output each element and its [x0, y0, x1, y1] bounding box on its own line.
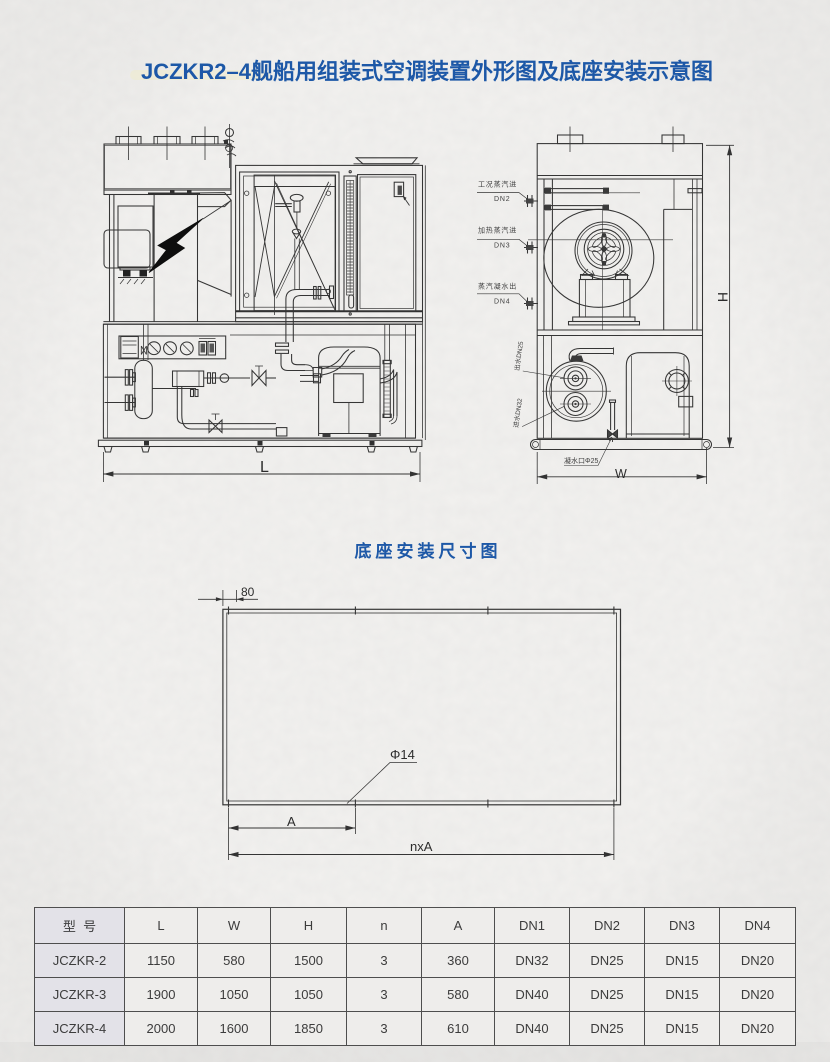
- svg-text:加热蒸汽进: 加热蒸汽进: [478, 226, 517, 235]
- svg-text:H: H: [715, 292, 731, 302]
- svg-text:蒸汽凝水出: 蒸汽凝水出: [478, 282, 517, 291]
- svg-text:DN4: DN4: [494, 299, 510, 306]
- svg-text:DN2: DN2: [494, 196, 510, 203]
- svg-text:W: W: [615, 467, 627, 481]
- svg-text:工况蒸汽进: 工况蒸汽进: [478, 180, 517, 189]
- svg-text:nxA: nxA: [410, 839, 433, 854]
- svg-text:80: 80: [241, 585, 255, 599]
- svg-text:凝水口Φ25: 凝水口Φ25: [564, 456, 598, 465]
- svg-text:DN3: DN3: [494, 243, 510, 250]
- svg-text:L: L: [260, 459, 269, 476]
- svg-text:A: A: [287, 814, 296, 829]
- svg-text:Φ14: Φ14: [390, 747, 415, 762]
- svg-text:出水DN25: 出水DN25: [512, 340, 525, 371]
- svg-text:进水DN32: 进水DN32: [511, 397, 524, 428]
